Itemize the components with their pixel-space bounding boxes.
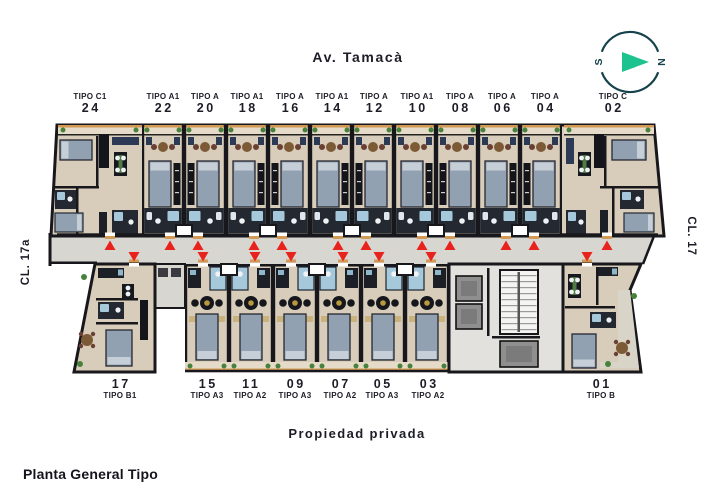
unit-tipo: TIPO A3 [191, 391, 224, 400]
unit-tipo: TIPO A2 [412, 391, 445, 400]
unit-number: 03 [412, 377, 445, 391]
unit-label-07: 07TIPO A2 [324, 377, 357, 401]
unit-number: 10 [401, 101, 434, 115]
compass-icon: S N [592, 26, 672, 98]
unit-number: 02 [599, 101, 627, 115]
unit-label-15: 15TIPO A3 [191, 377, 224, 401]
compass-s-label: S [593, 58, 605, 65]
unit-tipo: TIPO A [488, 92, 516, 101]
unit-number: 24 [73, 101, 106, 115]
unit-tipo: TIPO A [360, 92, 388, 101]
unit-label-04: TIPO A04 [531, 92, 559, 116]
unit-tipo: TIPO B1 [103, 391, 136, 400]
page-title: Planta General Tipo [23, 466, 158, 482]
service-shaft-block [155, 264, 185, 308]
unit-tipo: TIPO C1 [73, 92, 106, 101]
street-label-cl-17a: CL. 17a [20, 239, 32, 286]
unit-tipo: TIPO A2 [234, 391, 267, 400]
unit-tipo: TIPO A [531, 92, 559, 101]
unit-number: 17 [103, 377, 136, 391]
compass-north-arrow [622, 52, 649, 72]
unit-label-05: 05TIPO A3 [366, 377, 399, 401]
unit-number: 06 [488, 101, 516, 115]
unit-label-02: TIPO C02 [599, 92, 627, 116]
compass-n-label: N [655, 58, 667, 66]
street-label-propiedad-privada: Propiedad privada [288, 426, 425, 441]
unit-number: 22 [147, 101, 180, 115]
corridor [49, 233, 655, 266]
unit-label-20: TIPO A20 [191, 92, 219, 116]
unit-tipo: TIPO A1 [231, 92, 264, 101]
compass-ring-bottom [602, 72, 658, 92]
unit-tipo: TIPO A1 [147, 92, 180, 101]
unit-tipo: TIPO A1 [401, 92, 434, 101]
unit-tipo: TIPO A [446, 92, 474, 101]
unit-label-22: TIPO A122 [147, 92, 180, 116]
street-label-av-tamaca: Av. Tamacà [312, 49, 403, 65]
unit-tipo: TIPO A1 [316, 92, 349, 101]
unit-01 [563, 260, 641, 373]
unit-05 [361, 260, 405, 373]
unit-label-16: TIPO A16 [276, 92, 304, 116]
unit-label-03: 03TIPO A2 [412, 377, 445, 401]
unit-03 [405, 260, 449, 373]
unit-label-08: TIPO A08 [446, 92, 474, 116]
unit-label-14: TIPO A114 [316, 92, 349, 116]
unit-label-17: 17TIPO B1 [103, 377, 136, 401]
unit-number: 16 [276, 101, 304, 115]
unit-tipo: TIPO A3 [279, 391, 312, 400]
unit-label-11: 11TIPO A2 [234, 377, 267, 401]
unit-07 [317, 260, 361, 373]
compass-ring-top [602, 32, 658, 52]
unit-tipo: TIPO B [587, 391, 615, 400]
unit-tipo: TIPO A3 [366, 391, 399, 400]
street-label-cl-17: CL. 17 [685, 216, 697, 255]
unit-15 [185, 260, 229, 373]
unit-label-18: TIPO A118 [231, 92, 264, 116]
unit-number: 12 [360, 101, 388, 115]
unit-09 [273, 260, 317, 373]
core [449, 264, 563, 372]
unit-number: 09 [279, 377, 312, 391]
unit-label-09: 09TIPO A3 [279, 377, 312, 401]
unit-11 [229, 260, 273, 373]
unit-number: 11 [234, 377, 267, 391]
unit-tipo: TIPO A [276, 92, 304, 101]
unit-number: 15 [191, 377, 224, 391]
unit-label-24: TIPO C124 [73, 92, 106, 116]
unit-number: 08 [446, 101, 474, 115]
unit-label-12: TIPO A12 [360, 92, 388, 116]
unit-number: 04 [531, 101, 559, 115]
unit-number: 14 [316, 101, 349, 115]
unit-tipo: TIPO C [599, 92, 627, 101]
unit-number: 05 [366, 377, 399, 391]
unit-label-06: TIPO A06 [488, 92, 516, 116]
unit-17 [74, 260, 155, 373]
unit-number: 18 [231, 101, 264, 115]
unit-number: 01 [587, 377, 615, 391]
unit-label-01: 01TIPO B [587, 377, 615, 401]
unit-label-10: TIPO A110 [401, 92, 434, 116]
unit-tipo: TIPO A2 [324, 391, 357, 400]
floor-plan-page: S N Av. Tamacà Propiedad privada CL. 17a… [0, 0, 714, 500]
unit-tipo: TIPO A [191, 92, 219, 101]
unit-number: 07 [324, 377, 357, 391]
unit-number: 20 [191, 101, 219, 115]
